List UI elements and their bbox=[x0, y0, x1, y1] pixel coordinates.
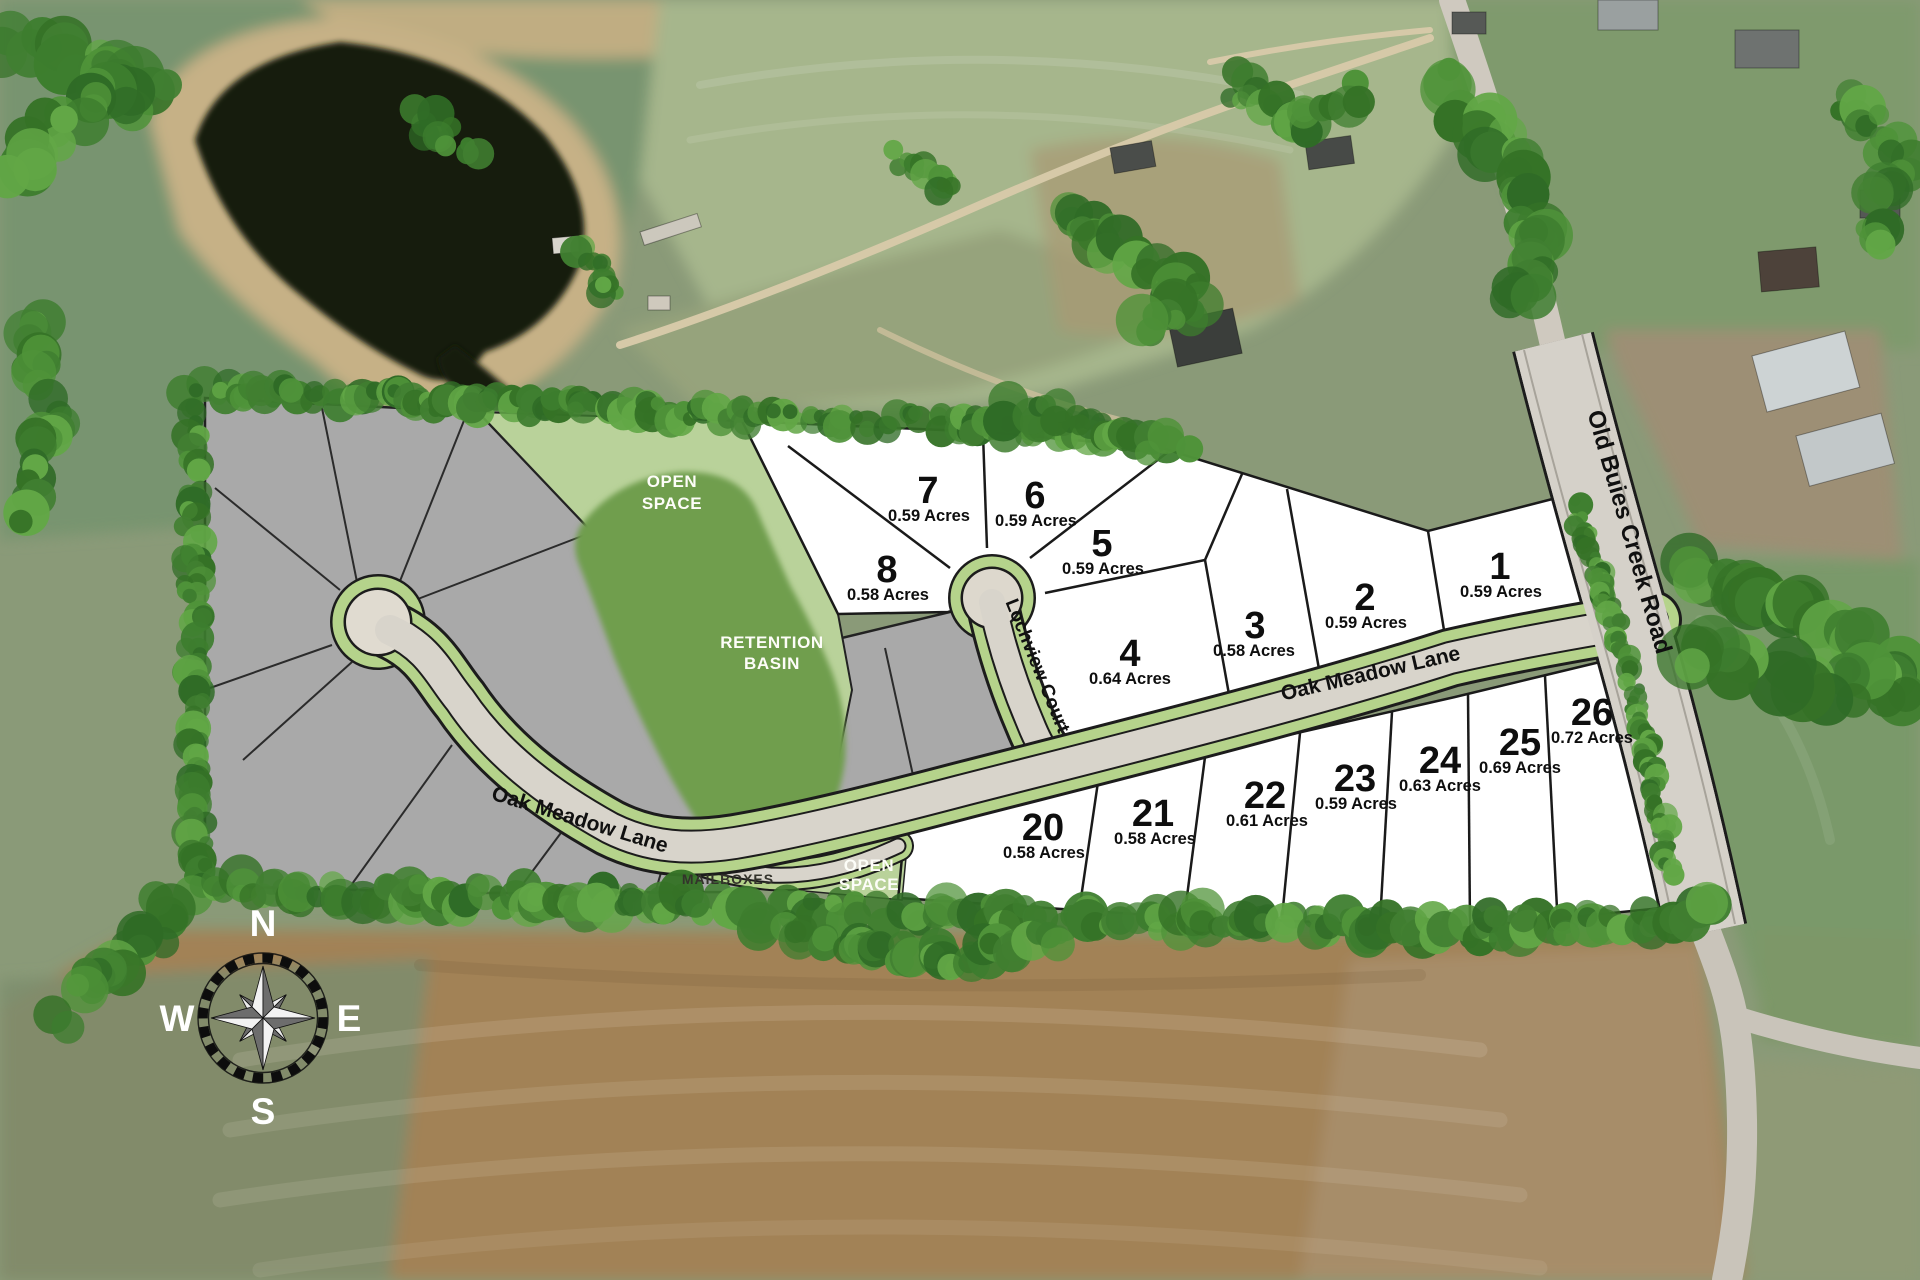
lot-number: 25 bbox=[1499, 722, 1541, 764]
lot-number: 5 bbox=[1091, 523, 1112, 565]
open-space-south-label: OPEN SPACE bbox=[839, 856, 899, 894]
tree bbox=[1663, 864, 1684, 885]
tree bbox=[908, 406, 923, 421]
open-space-label-line2: SPACE bbox=[642, 494, 702, 513]
lot-number: 7 bbox=[917, 470, 938, 512]
lot-acreage: 0.59 Acres bbox=[1325, 614, 1407, 632]
tree bbox=[1686, 882, 1728, 924]
lot-acreage: 0.58 Acres bbox=[1213, 642, 1295, 660]
tree bbox=[1669, 546, 1711, 588]
lot-number: 21 bbox=[1132, 793, 1174, 835]
lot-acreage: 0.59 Acres bbox=[995, 512, 1077, 530]
tree bbox=[595, 277, 611, 293]
tree bbox=[463, 138, 494, 169]
tree bbox=[859, 421, 875, 437]
tree bbox=[937, 178, 951, 192]
lot-number: 23 bbox=[1334, 758, 1376, 800]
tree bbox=[1851, 171, 1894, 214]
lot-acreage: 0.58 Acres bbox=[847, 586, 929, 604]
lot-acreage: 0.69 Acres bbox=[1479, 759, 1561, 777]
lot-number: 24 bbox=[1419, 740, 1461, 782]
mailboxes-label: MAILBOXES bbox=[682, 871, 774, 887]
lot-number: 22 bbox=[1244, 775, 1286, 817]
tree bbox=[1869, 105, 1889, 125]
compass-east-label: E bbox=[337, 998, 362, 1039]
lot-acreage: 0.58 Acres bbox=[1003, 844, 1085, 862]
tree bbox=[187, 459, 211, 483]
compass-south-label: S bbox=[251, 1091, 276, 1132]
lot-number: 4 bbox=[1119, 633, 1140, 675]
lot-acreage: 0.59 Acres bbox=[1315, 795, 1397, 813]
open-space-south-line2: SPACE bbox=[839, 875, 899, 894]
lot-acreage: 0.59 Acres bbox=[1062, 560, 1144, 578]
tree bbox=[1343, 86, 1375, 118]
tree bbox=[1675, 648, 1710, 683]
tree bbox=[1511, 274, 1557, 320]
tree bbox=[766, 403, 781, 418]
tree bbox=[51, 1011, 84, 1044]
tree bbox=[1069, 414, 1090, 435]
tree bbox=[803, 893, 821, 911]
lot-acreage: 0.59 Acres bbox=[888, 507, 970, 525]
lot-acreage: 0.72 Acres bbox=[1551, 729, 1633, 747]
lot-acreage: 0.64 Acres bbox=[1089, 670, 1171, 688]
lot-number: 1 bbox=[1489, 546, 1510, 588]
tree bbox=[1509, 904, 1537, 932]
compass-north-label: N bbox=[250, 903, 277, 944]
lot-number: 6 bbox=[1024, 475, 1045, 517]
tree bbox=[1176, 435, 1203, 462]
tree bbox=[1866, 230, 1896, 260]
lot-number: 20 bbox=[1022, 807, 1064, 849]
retention-basin-label-line2: BASIN bbox=[744, 654, 800, 673]
tree bbox=[593, 255, 608, 270]
tree bbox=[435, 135, 456, 156]
tree bbox=[567, 391, 599, 423]
site-plan-canvas: 1 0.59 Acres 2 0.59 Acres 3 0.58 Acres 4… bbox=[0, 0, 1920, 1280]
lot-acreage: 0.63 Acres bbox=[1399, 777, 1481, 795]
tree bbox=[151, 69, 182, 100]
tree bbox=[1116, 294, 1169, 347]
compass-west-label: W bbox=[160, 998, 195, 1039]
lot-acreage: 0.61 Acres bbox=[1226, 812, 1308, 830]
lot-number: 3 bbox=[1244, 605, 1265, 647]
retention-basin-label-line1: RETENTION bbox=[720, 633, 824, 652]
tree bbox=[279, 378, 304, 403]
site-plan-map: 1 0.59 Acres 2 0.59 Acres 3 0.58 Acres 4… bbox=[0, 0, 1920, 1280]
lot-acreage: 0.59 Acres bbox=[1460, 583, 1542, 601]
tree bbox=[9, 510, 33, 534]
tree bbox=[1040, 406, 1070, 436]
open-space-south-line1: OPEN bbox=[844, 856, 895, 875]
lot-number: 2 bbox=[1354, 577, 1375, 619]
lot-acreage: 0.58 Acres bbox=[1114, 830, 1196, 848]
tree bbox=[189, 383, 203, 397]
open-space-label-line1: OPEN bbox=[647, 472, 698, 491]
tree bbox=[1041, 927, 1075, 961]
tree bbox=[783, 404, 798, 419]
tree bbox=[50, 106, 78, 134]
lot-number: 8 bbox=[876, 549, 897, 591]
lot-number: 26 bbox=[1571, 692, 1613, 734]
tree bbox=[304, 381, 325, 402]
tree bbox=[182, 589, 196, 603]
